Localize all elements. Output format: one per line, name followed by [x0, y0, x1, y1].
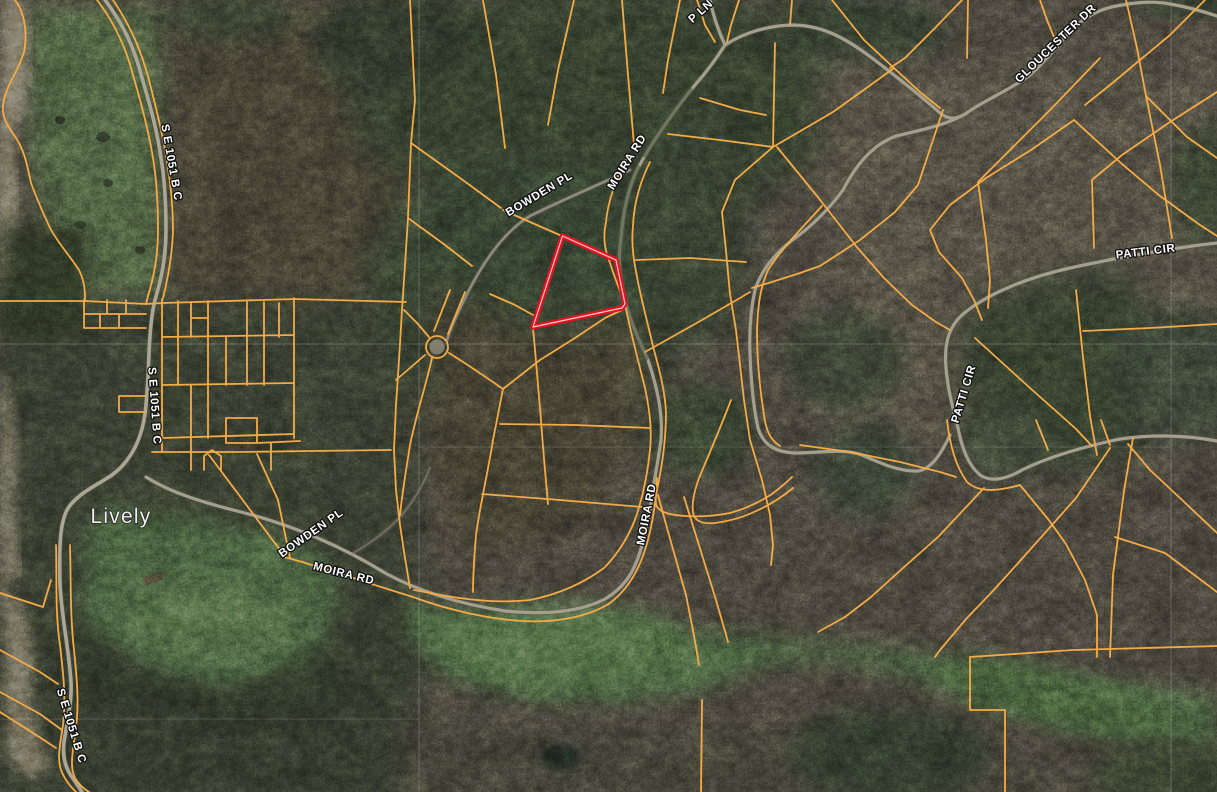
svg-text:Lively: Lively [91, 505, 152, 528]
